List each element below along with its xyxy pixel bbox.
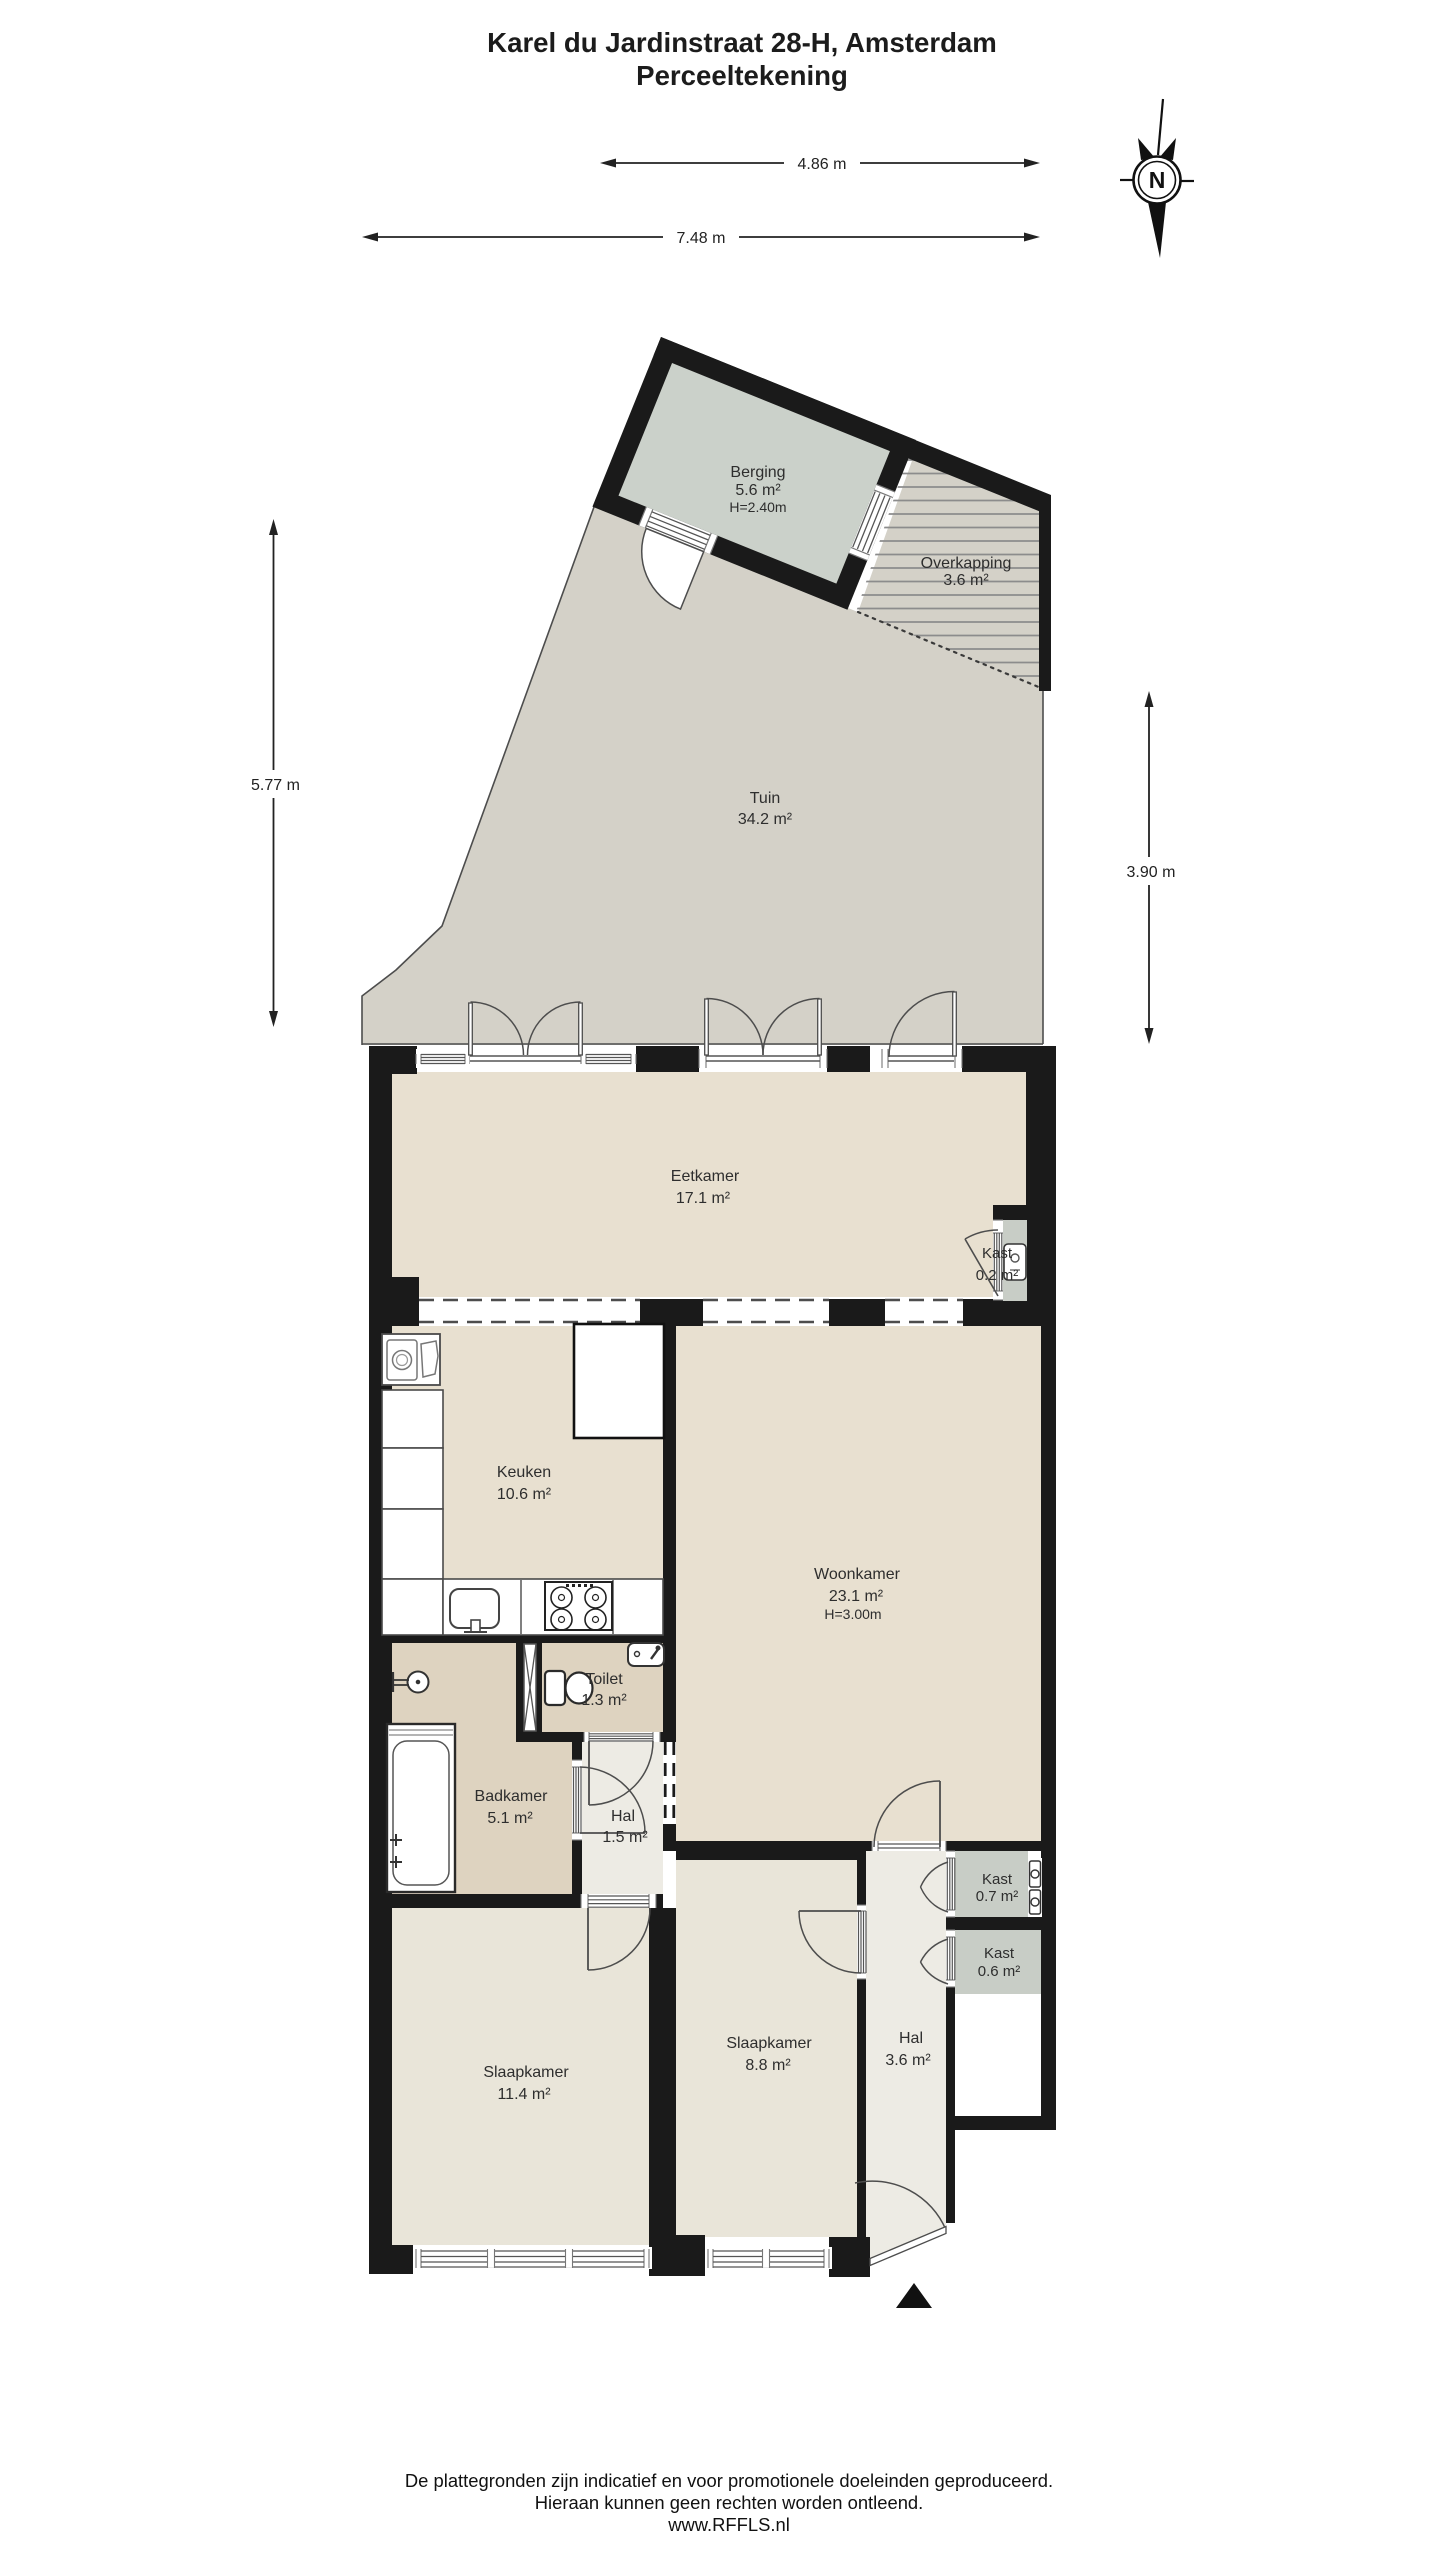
svg-text:3.90 m: 3.90 m — [1127, 864, 1176, 881]
svg-text:Keuken: Keuken — [497, 1464, 551, 1481]
svg-text:Toilet: Toilet — [585, 1671, 623, 1688]
svg-text:17.1 m²: 17.1 m² — [676, 1190, 731, 1207]
svg-text:7.48 m: 7.48 m — [677, 230, 726, 247]
svg-text:3.6 m²: 3.6 m² — [943, 572, 989, 589]
svg-text:Hieraan kunnen geen rechten wo: Hieraan kunnen geen rechten worden ontle… — [535, 2492, 924, 2513]
svg-text:Karel du Jardinstraat 28-H, Am: Karel du Jardinstraat 28-H, Amsterdam — [487, 27, 997, 58]
svg-text:Hal: Hal — [611, 1808, 635, 1825]
svg-text:Slaapkamer: Slaapkamer — [483, 2064, 569, 2081]
svg-text:34.2 m²: 34.2 m² — [738, 811, 793, 828]
svg-text:5.1 m²: 5.1 m² — [487, 1810, 533, 1827]
svg-text:Overkapping: Overkapping — [921, 555, 1012, 572]
svg-text:0.6 m²: 0.6 m² — [978, 1963, 1021, 1980]
svg-text:1.5 m²: 1.5 m² — [602, 1829, 648, 1846]
svg-text:H=2.40m: H=2.40m — [729, 499, 786, 515]
svg-text:0.2 m²: 0.2 m² — [976, 1267, 1019, 1284]
svg-text:3.6 m²: 3.6 m² — [885, 2052, 931, 2069]
svg-text:0.7 m²: 0.7 m² — [976, 1888, 1019, 1905]
svg-text:H=3.00m: H=3.00m — [824, 1606, 881, 1622]
svg-text:Hal: Hal — [899, 2030, 923, 2047]
svg-text:23.1 m²: 23.1 m² — [829, 1588, 884, 1605]
svg-text:www.RFFLS.nl: www.RFFLS.nl — [667, 2514, 790, 2535]
svg-text:Berging: Berging — [730, 464, 785, 481]
svg-text:Badkamer: Badkamer — [475, 1788, 549, 1805]
svg-text:Perceeltekening: Perceeltekening — [636, 60, 848, 91]
svg-text:1.3 m²: 1.3 m² — [581, 1692, 627, 1709]
svg-text:10.6 m²: 10.6 m² — [497, 1486, 552, 1503]
svg-text:11.4 m²: 11.4 m² — [497, 2086, 551, 2103]
svg-text:Eetkamer: Eetkamer — [671, 1168, 740, 1185]
svg-text:Kast: Kast — [982, 1871, 1013, 1888]
svg-text:Tuin: Tuin — [750, 790, 781, 807]
svg-text:5.6 m²: 5.6 m² — [735, 482, 781, 499]
svg-text:Kast: Kast — [982, 1245, 1013, 1262]
svg-text:8.8 m²: 8.8 m² — [745, 2057, 791, 2074]
svg-text:Woonkamer: Woonkamer — [814, 1566, 901, 1583]
svg-text:Slaapkamer: Slaapkamer — [726, 2035, 812, 2052]
svg-text:De plattegronden zijn indicati: De plattegronden zijn indicatief en voor… — [405, 2470, 1053, 2491]
svg-text:N: N — [1149, 167, 1166, 193]
svg-text:5.77 m: 5.77 m — [251, 777, 300, 794]
svg-text:Kast: Kast — [984, 1945, 1015, 1962]
svg-text:4.86 m: 4.86 m — [798, 156, 847, 173]
